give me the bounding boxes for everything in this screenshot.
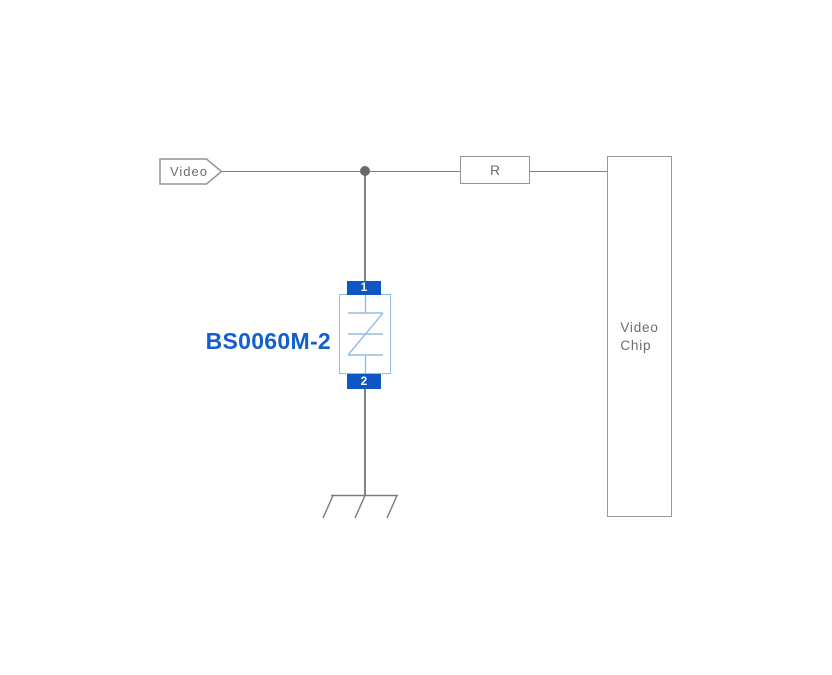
wire-resistor-to-chip — [528, 171, 608, 173]
wire-device-to-ground — [364, 388, 366, 496]
video-chip-label: Video Chip — [620, 319, 658, 355]
wire-junction-to-device — [364, 175, 366, 282]
device-pin2-pad: 2 — [347, 374, 381, 389]
resistor-box: R — [460, 156, 530, 184]
device-pin1-label: 1 — [361, 282, 367, 294]
device-pin2-label: 2 — [361, 376, 367, 388]
junction-dot — [360, 166, 370, 176]
video-chip-box: Video Chip — [607, 156, 672, 517]
schematic-canvas: Video R Video Chip 1 2 BS0060M-2 — [0, 0, 832, 675]
part-number-label: BS0060M-2 — [150, 328, 331, 355]
device-pin1-pad: 1 — [347, 281, 381, 295]
resistor-label: R — [490, 162, 500, 178]
ground-icon — [318, 490, 406, 522]
wire-video-to-resistor — [221, 171, 461, 173]
net-label-video: Video — [159, 158, 219, 185]
tvs-diode-symbol-icon — [339, 294, 392, 375]
